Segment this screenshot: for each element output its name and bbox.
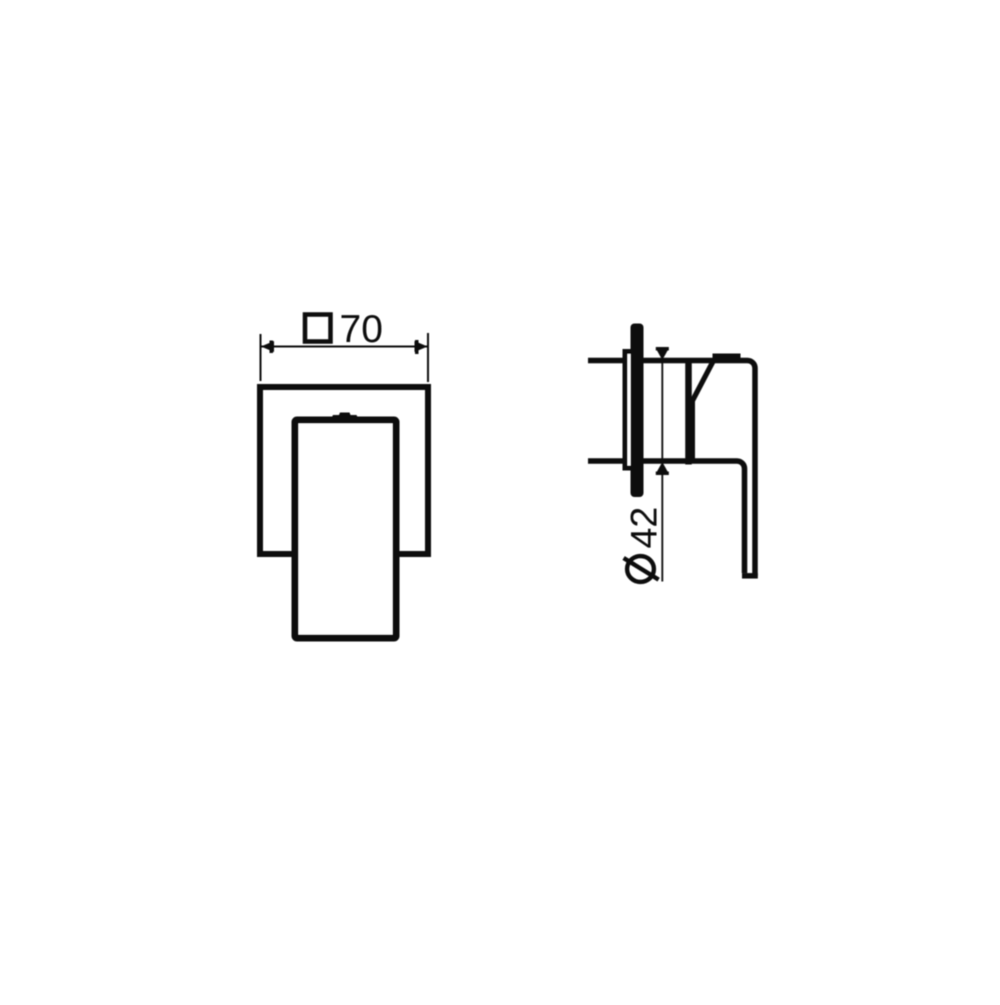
svg-text:70: 70: [340, 308, 383, 351]
svg-text:42: 42: [623, 507, 665, 549]
